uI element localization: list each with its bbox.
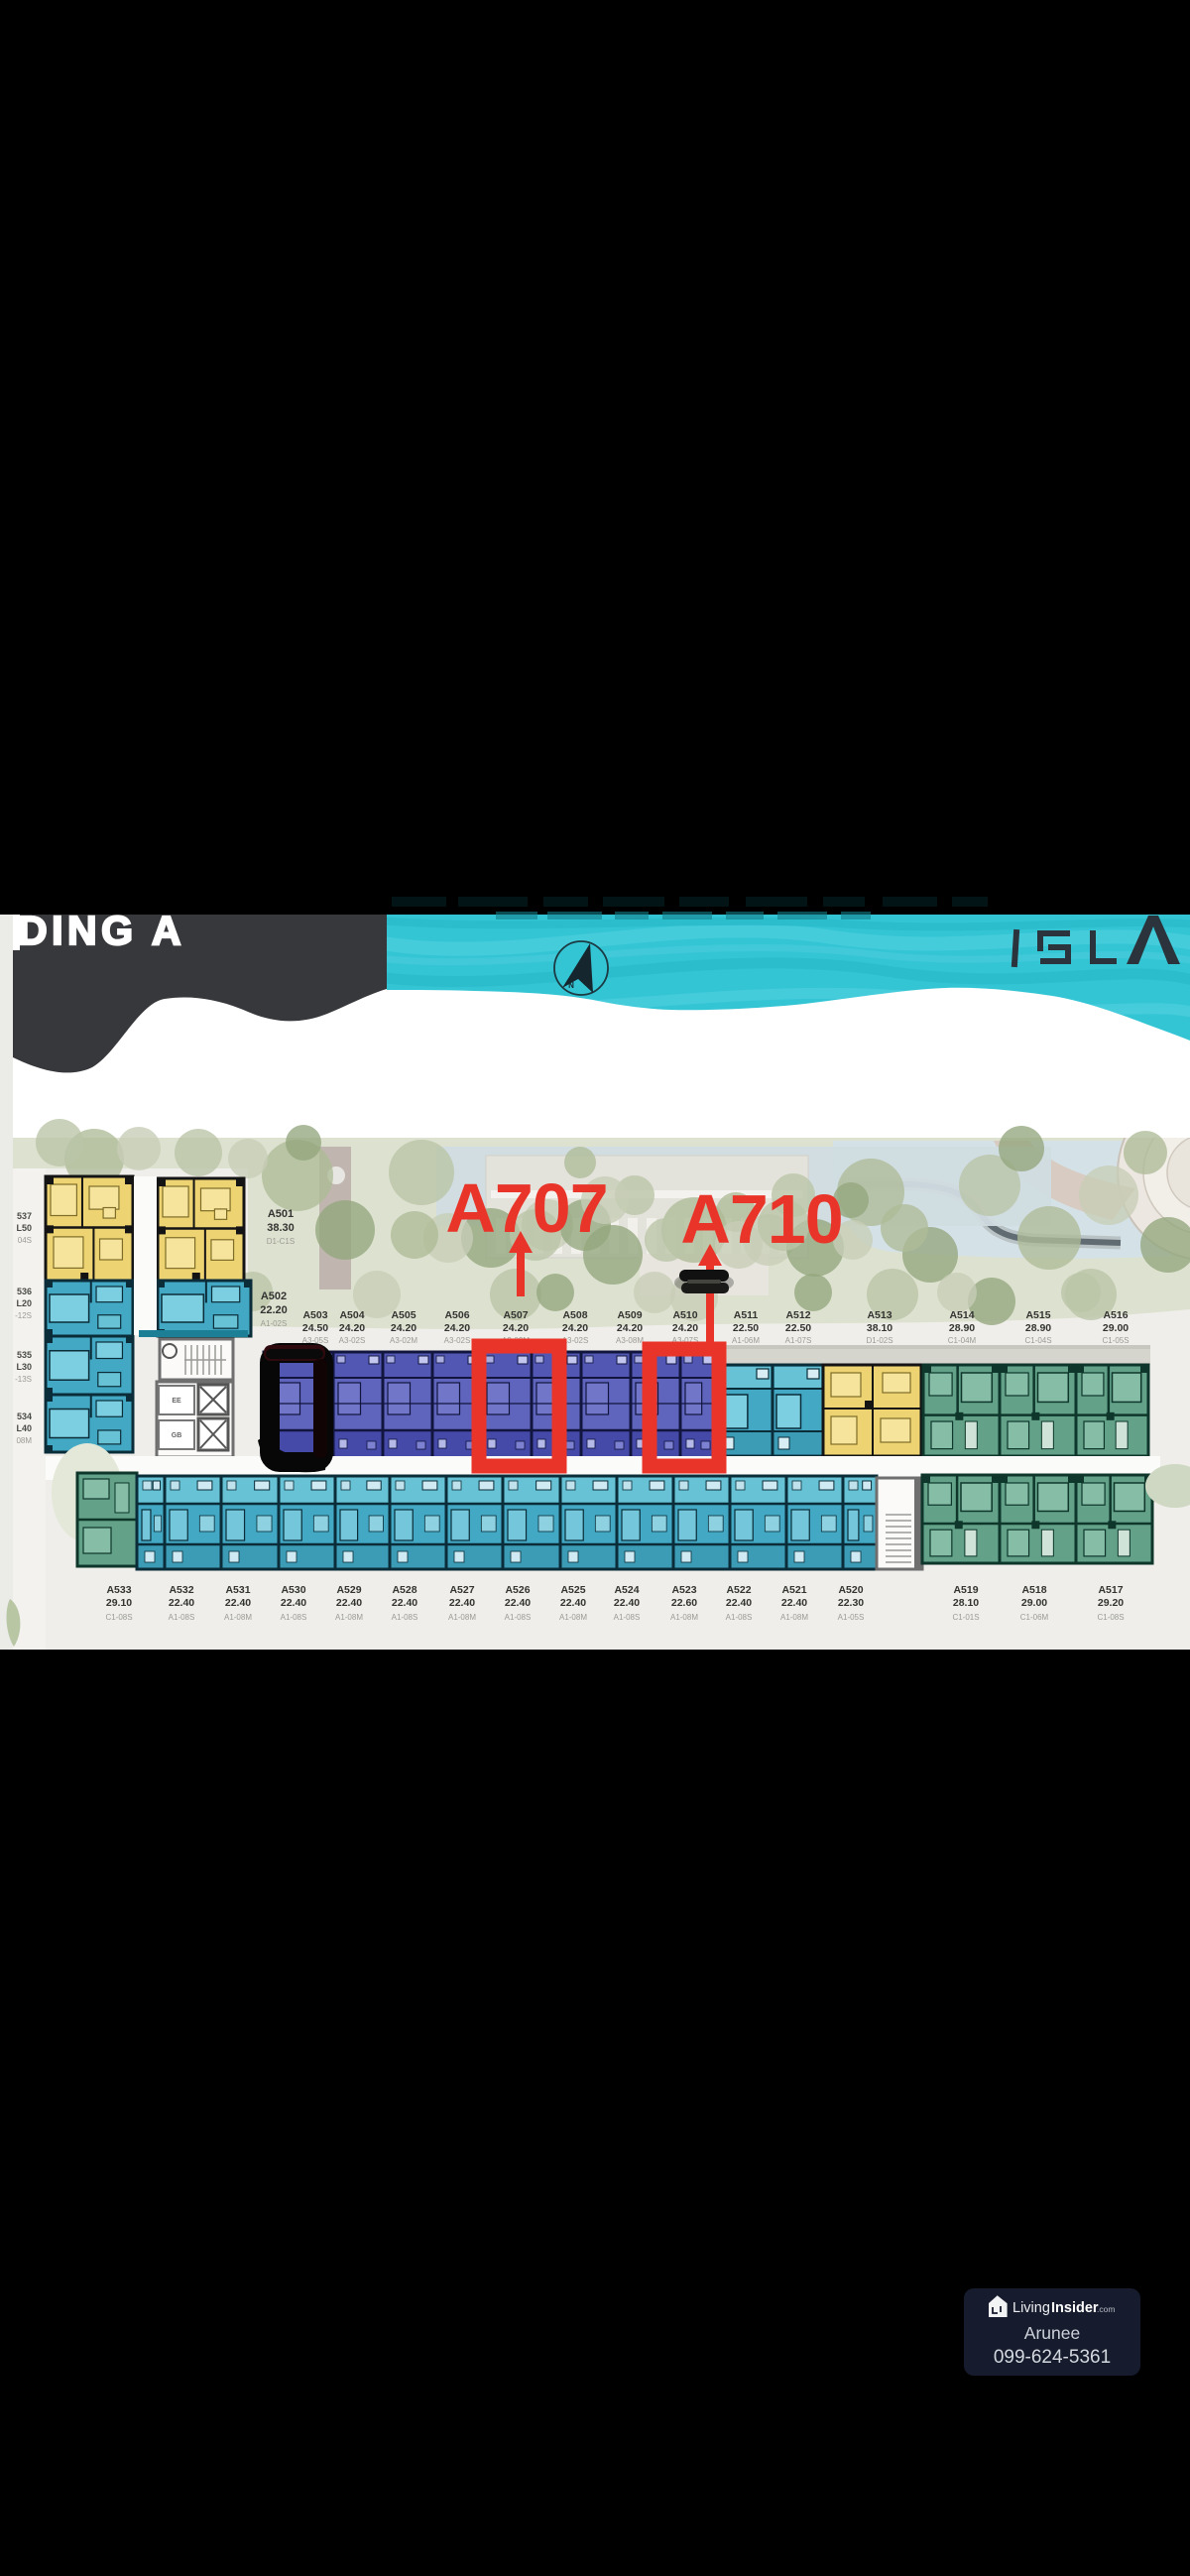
svg-text:A515: A515 xyxy=(1025,1309,1050,1321)
svg-text:-12S: -12S xyxy=(15,1311,32,1320)
svg-text:D1-C1S: D1-C1S xyxy=(267,1237,295,1246)
svg-text:A517: A517 xyxy=(1098,1584,1123,1596)
svg-text:28.90: 28.90 xyxy=(1025,1322,1051,1334)
svg-text:24.20: 24.20 xyxy=(391,1322,416,1334)
svg-text:A511: A511 xyxy=(734,1309,759,1321)
svg-text:22.40: 22.40 xyxy=(225,1597,251,1609)
svg-text:A1-07S: A1-07S xyxy=(785,1336,812,1345)
svg-text:A530: A530 xyxy=(281,1584,305,1596)
svg-text:C1-01S: C1-01S xyxy=(952,1613,979,1622)
svg-text:24.20: 24.20 xyxy=(672,1322,698,1334)
svg-text:A1-08M: A1-08M xyxy=(780,1613,808,1622)
svg-text:A3-02M: A3-02M xyxy=(390,1336,417,1345)
svg-text:22.40: 22.40 xyxy=(392,1597,417,1609)
svg-text:L50: L50 xyxy=(16,1223,32,1233)
svg-text:22.40: 22.40 xyxy=(726,1597,752,1609)
svg-text:28.10: 28.10 xyxy=(953,1597,979,1609)
svg-text:A523: A523 xyxy=(671,1584,696,1596)
svg-text:22.40: 22.40 xyxy=(505,1597,531,1609)
svg-text:A519: A519 xyxy=(953,1584,978,1596)
svg-text:A528: A528 xyxy=(392,1584,416,1596)
svg-text:22.60: 22.60 xyxy=(671,1597,697,1609)
svg-text:29.20: 29.20 xyxy=(1098,1597,1124,1609)
svg-text:08M: 08M xyxy=(16,1436,32,1445)
svg-text:A533: A533 xyxy=(106,1584,131,1596)
svg-text:24.20: 24.20 xyxy=(444,1322,470,1334)
svg-text:A508: A508 xyxy=(562,1309,587,1321)
svg-text:Living: Living xyxy=(1012,2300,1050,2316)
svg-text:22.30: 22.30 xyxy=(838,1597,864,1609)
svg-text:.com: .com xyxy=(1097,2304,1115,2314)
svg-text:L20: L20 xyxy=(16,1298,32,1308)
svg-text:A503: A503 xyxy=(302,1309,327,1321)
svg-text:29.00: 29.00 xyxy=(1021,1597,1047,1609)
svg-text:A1-08M: A1-08M xyxy=(224,1613,252,1622)
svg-text:24.20: 24.20 xyxy=(562,1322,588,1334)
svg-text:A506: A506 xyxy=(444,1309,469,1321)
svg-text:-13S: -13S xyxy=(15,1375,32,1384)
svg-text:534: 534 xyxy=(17,1411,32,1421)
svg-text:22.40: 22.40 xyxy=(560,1597,586,1609)
svg-text:22.40: 22.40 xyxy=(169,1597,194,1609)
svg-text:A1-08M: A1-08M xyxy=(335,1613,363,1622)
svg-text:A3-02S: A3-02S xyxy=(444,1336,471,1345)
svg-text:24.20: 24.20 xyxy=(617,1322,643,1334)
svg-text:A507: A507 xyxy=(503,1309,528,1321)
svg-text:A532: A532 xyxy=(169,1584,193,1596)
svg-text:A1-08S: A1-08S xyxy=(392,1613,418,1622)
svg-text:A520: A520 xyxy=(838,1584,863,1596)
svg-text:A1-02S: A1-02S xyxy=(261,1319,288,1328)
svg-text:A1-08S: A1-08S xyxy=(726,1613,753,1622)
svg-text:A505: A505 xyxy=(391,1309,416,1321)
svg-text:04S: 04S xyxy=(18,1236,32,1245)
svg-text:A3-08M: A3-08M xyxy=(616,1336,644,1345)
svg-text:29.00: 29.00 xyxy=(1103,1322,1129,1334)
svg-text:C1-04S: C1-04S xyxy=(1024,1336,1051,1345)
svg-text:A525: A525 xyxy=(560,1584,585,1596)
svg-text:C1-08S: C1-08S xyxy=(1097,1613,1124,1622)
svg-text:EE: EE xyxy=(172,1398,181,1405)
svg-text:A516: A516 xyxy=(1103,1309,1128,1321)
svg-text:A1-08M: A1-08M xyxy=(559,1613,587,1622)
svg-text:A710: A710 xyxy=(680,1180,842,1258)
svg-text:A1-08S: A1-08S xyxy=(614,1613,641,1622)
svg-text:537: 537 xyxy=(17,1211,32,1221)
svg-text:A529: A529 xyxy=(336,1584,361,1596)
svg-text:A509: A509 xyxy=(617,1309,642,1321)
svg-text:A1-08M: A1-08M xyxy=(670,1613,698,1622)
svg-text:A513: A513 xyxy=(867,1309,892,1321)
svg-text:22.40: 22.40 xyxy=(781,1597,807,1609)
svg-text:N: N xyxy=(568,981,574,990)
svg-text:24.20: 24.20 xyxy=(503,1322,529,1334)
svg-text:C1-04M: C1-04M xyxy=(948,1336,977,1345)
svg-text:A524: A524 xyxy=(614,1584,639,1596)
svg-text:A526: A526 xyxy=(505,1584,530,1596)
svg-text:A1-08S: A1-08S xyxy=(281,1613,307,1622)
svg-text:A502: A502 xyxy=(261,1290,287,1302)
svg-text:24.20: 24.20 xyxy=(339,1322,365,1334)
svg-text:DING A: DING A xyxy=(18,908,185,953)
svg-text:GB: GB xyxy=(172,1432,182,1439)
svg-text:22.40: 22.40 xyxy=(336,1597,362,1609)
svg-text:A1-08S: A1-08S xyxy=(505,1613,532,1622)
svg-text:22.40: 22.40 xyxy=(449,1597,475,1609)
svg-text:A527: A527 xyxy=(449,1584,474,1596)
svg-text:A531: A531 xyxy=(225,1584,250,1596)
svg-text:A1-05S: A1-05S xyxy=(838,1613,865,1622)
svg-text:A3-02S: A3-02S xyxy=(339,1336,366,1345)
svg-text:A521: A521 xyxy=(781,1584,806,1596)
svg-text:C1-05S: C1-05S xyxy=(1102,1336,1129,1345)
svg-text:22.40: 22.40 xyxy=(614,1597,640,1609)
svg-text:A510: A510 xyxy=(672,1309,697,1321)
svg-text:22.50: 22.50 xyxy=(733,1322,759,1334)
svg-text:C1-06M: C1-06M xyxy=(1020,1613,1049,1622)
svg-text:A504: A504 xyxy=(339,1309,364,1321)
svg-text:A707: A707 xyxy=(445,1169,607,1247)
svg-text:099-624-5361: 099-624-5361 xyxy=(994,2347,1111,2368)
svg-text:A514: A514 xyxy=(949,1309,974,1321)
svg-text:535: 535 xyxy=(17,1350,32,1360)
svg-text:A522: A522 xyxy=(726,1584,751,1596)
svg-text:536: 536 xyxy=(17,1287,32,1296)
svg-text:22.20: 22.20 xyxy=(260,1304,288,1316)
svg-text:A501: A501 xyxy=(268,1208,294,1220)
svg-text:D1-02S: D1-02S xyxy=(866,1336,892,1345)
svg-text:A1-08S: A1-08S xyxy=(169,1613,195,1622)
svg-text:Arunee: Arunee xyxy=(1024,2323,1080,2343)
svg-text:38.10: 38.10 xyxy=(867,1322,892,1334)
svg-text:A518: A518 xyxy=(1021,1584,1046,1596)
svg-text:22.50: 22.50 xyxy=(785,1322,811,1334)
svg-text:29.10: 29.10 xyxy=(106,1597,132,1609)
svg-text:Insider: Insider xyxy=(1051,2300,1099,2316)
svg-text:A1-06M: A1-06M xyxy=(732,1336,760,1345)
svg-text:24.50: 24.50 xyxy=(302,1322,328,1334)
svg-text:A1-08M: A1-08M xyxy=(448,1613,476,1622)
svg-text:C1-08S: C1-08S xyxy=(105,1613,132,1622)
svg-text:L40: L40 xyxy=(16,1423,32,1433)
svg-text:22.40: 22.40 xyxy=(281,1597,306,1609)
svg-text:28.90: 28.90 xyxy=(949,1322,975,1334)
svg-text:L30: L30 xyxy=(16,1362,32,1372)
svg-text:A512: A512 xyxy=(785,1309,810,1321)
svg-text:38.30: 38.30 xyxy=(267,1222,295,1234)
